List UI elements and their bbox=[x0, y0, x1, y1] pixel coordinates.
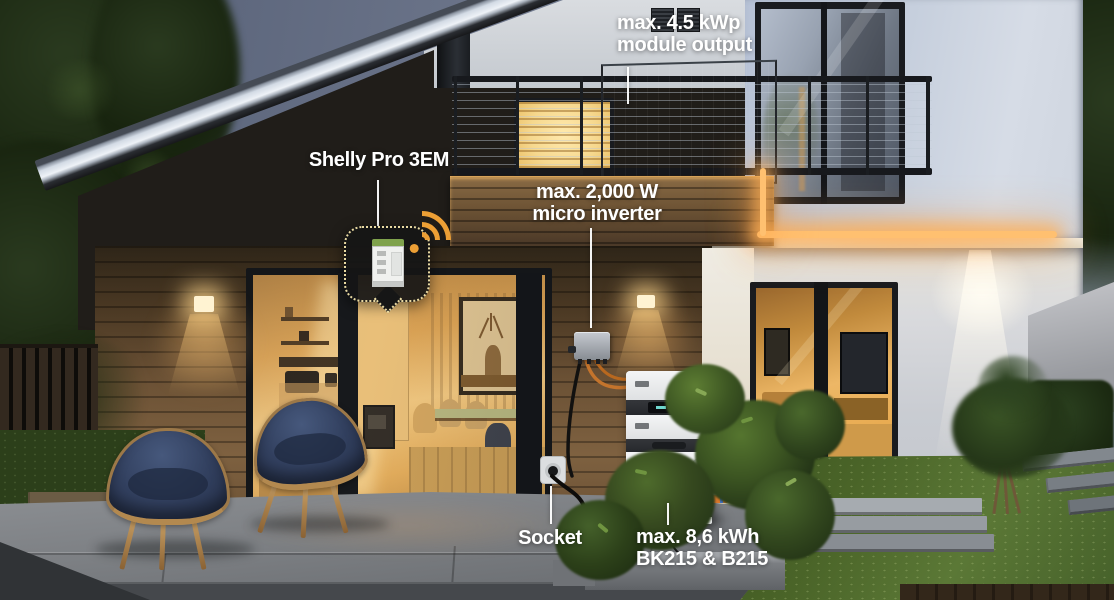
leader-line bbox=[627, 67, 629, 104]
led-cove-strip bbox=[757, 231, 1057, 238]
bush-foliage bbox=[775, 390, 845, 460]
callout-line: max. 8,6 kWh bbox=[636, 526, 768, 548]
patio-chair bbox=[98, 420, 238, 570]
foliage-highlight bbox=[40, 60, 120, 120]
leader-line bbox=[550, 486, 552, 524]
deck-strip bbox=[900, 584, 1114, 600]
wall-lamp bbox=[637, 295, 655, 308]
chair-leg bbox=[328, 478, 348, 533]
callout-socket: Socket bbox=[495, 527, 605, 549]
chair-leg bbox=[190, 516, 206, 570]
device-slot bbox=[377, 251, 386, 256]
device-slot bbox=[377, 269, 386, 274]
callout-module-output: max. 4.5 kWp module output bbox=[617, 12, 752, 56]
railing-post bbox=[516, 76, 519, 175]
house-photo-scene: max. 4.5 kWp module output Shelly Pro 3E… bbox=[0, 0, 1114, 600]
callout-line: BK215 & B215 bbox=[636, 548, 768, 570]
callout-battery: max. 8,6 kWh BK215 & B215 bbox=[636, 526, 768, 570]
callout-micro-inverter: max. 2,000 W micro inverter bbox=[507, 181, 687, 225]
led-cove-strip bbox=[760, 168, 766, 236]
callout-line: max. 4.5 kWp bbox=[617, 12, 752, 34]
railing-post bbox=[580, 76, 583, 175]
small-tree-foliage bbox=[978, 356, 1048, 420]
door-stile bbox=[516, 273, 542, 503]
callout-line: Shelly Pro 3EM bbox=[290, 149, 468, 171]
chair-leg bbox=[301, 484, 309, 538]
chair-cushion bbox=[128, 468, 208, 500]
callout-line: Socket bbox=[495, 527, 605, 549]
chair-leg bbox=[119, 514, 137, 570]
callout-line: max. 2,000 W bbox=[507, 181, 687, 203]
tv-screen bbox=[840, 332, 888, 394]
device-base bbox=[372, 282, 404, 287]
leader-line bbox=[667, 503, 669, 525]
railing-post bbox=[926, 76, 930, 175]
leader-line bbox=[377, 180, 379, 227]
device-slot bbox=[377, 260, 386, 265]
railing-post bbox=[808, 76, 811, 175]
leader-line bbox=[590, 228, 592, 328]
chair-leg bbox=[159, 520, 166, 570]
callout-line: micro inverter bbox=[507, 203, 687, 225]
callout-shelly: Shelly Pro 3EM bbox=[290, 149, 468, 171]
callout-line: module output bbox=[617, 34, 752, 56]
railing-post bbox=[866, 76, 869, 175]
patio-chair bbox=[250, 392, 370, 542]
wall-lamp bbox=[194, 296, 214, 312]
bush-foliage bbox=[665, 364, 745, 434]
